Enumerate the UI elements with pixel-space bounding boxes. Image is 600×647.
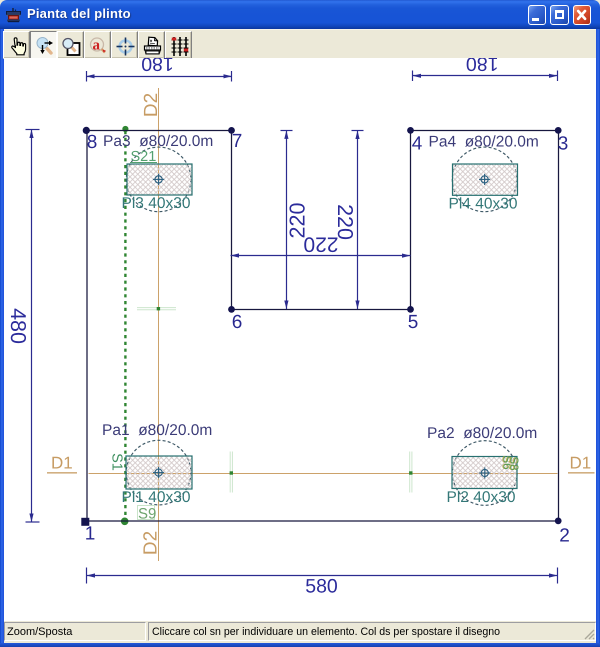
svg-text:180: 180 [141,58,174,75]
svg-text:D2: D2 [141,531,162,555]
svg-text:Pa4 ø80/20.0m: Pa4 ø80/20.0m [429,134,539,151]
svg-text:Pl1 40x30: Pl1 40x30 [122,489,191,506]
svg-text:7: 7 [232,131,243,152]
svg-text:a: a [93,38,101,54]
svg-text:Pl4 40x30: Pl4 40x30 [449,196,518,213]
svg-text:3: 3 [558,134,569,155]
svg-text:S9: S9 [138,506,156,523]
svg-text:D2: D2 [141,93,162,117]
svg-text:580: 580 [305,576,338,598]
svg-text:Pl2 40x30: Pl2 40x30 [447,489,516,506]
svg-text:1: 1 [85,524,96,545]
svg-text:6: 6 [232,312,243,333]
svg-text:Pl3 40x30: Pl3 40x30 [122,195,191,212]
svg-text:Pa3 ø80/20.0m: Pa3 ø80/20.0m [103,133,213,150]
svg-text:8: 8 [87,132,98,153]
svg-text:2: 2 [559,526,570,547]
svg-text:480: 480 [6,308,30,344]
svg-text:Pa1 ø80/20.0m: Pa1 ø80/20.0m [102,422,212,439]
svg-text:D1: D1 [570,454,592,473]
svg-text:S8: S8 [508,456,520,470]
svg-text:180: 180 [466,58,499,74]
svg-text:4: 4 [412,134,423,155]
svg-text:D1: D1 [51,454,73,473]
svg-text:220: 220 [303,233,338,256]
svg-text:5: 5 [408,312,419,333]
svg-text:S1: S1 [109,453,125,471]
svg-text:Pa2 ø80/20.0m: Pa2 ø80/20.0m [427,425,537,442]
